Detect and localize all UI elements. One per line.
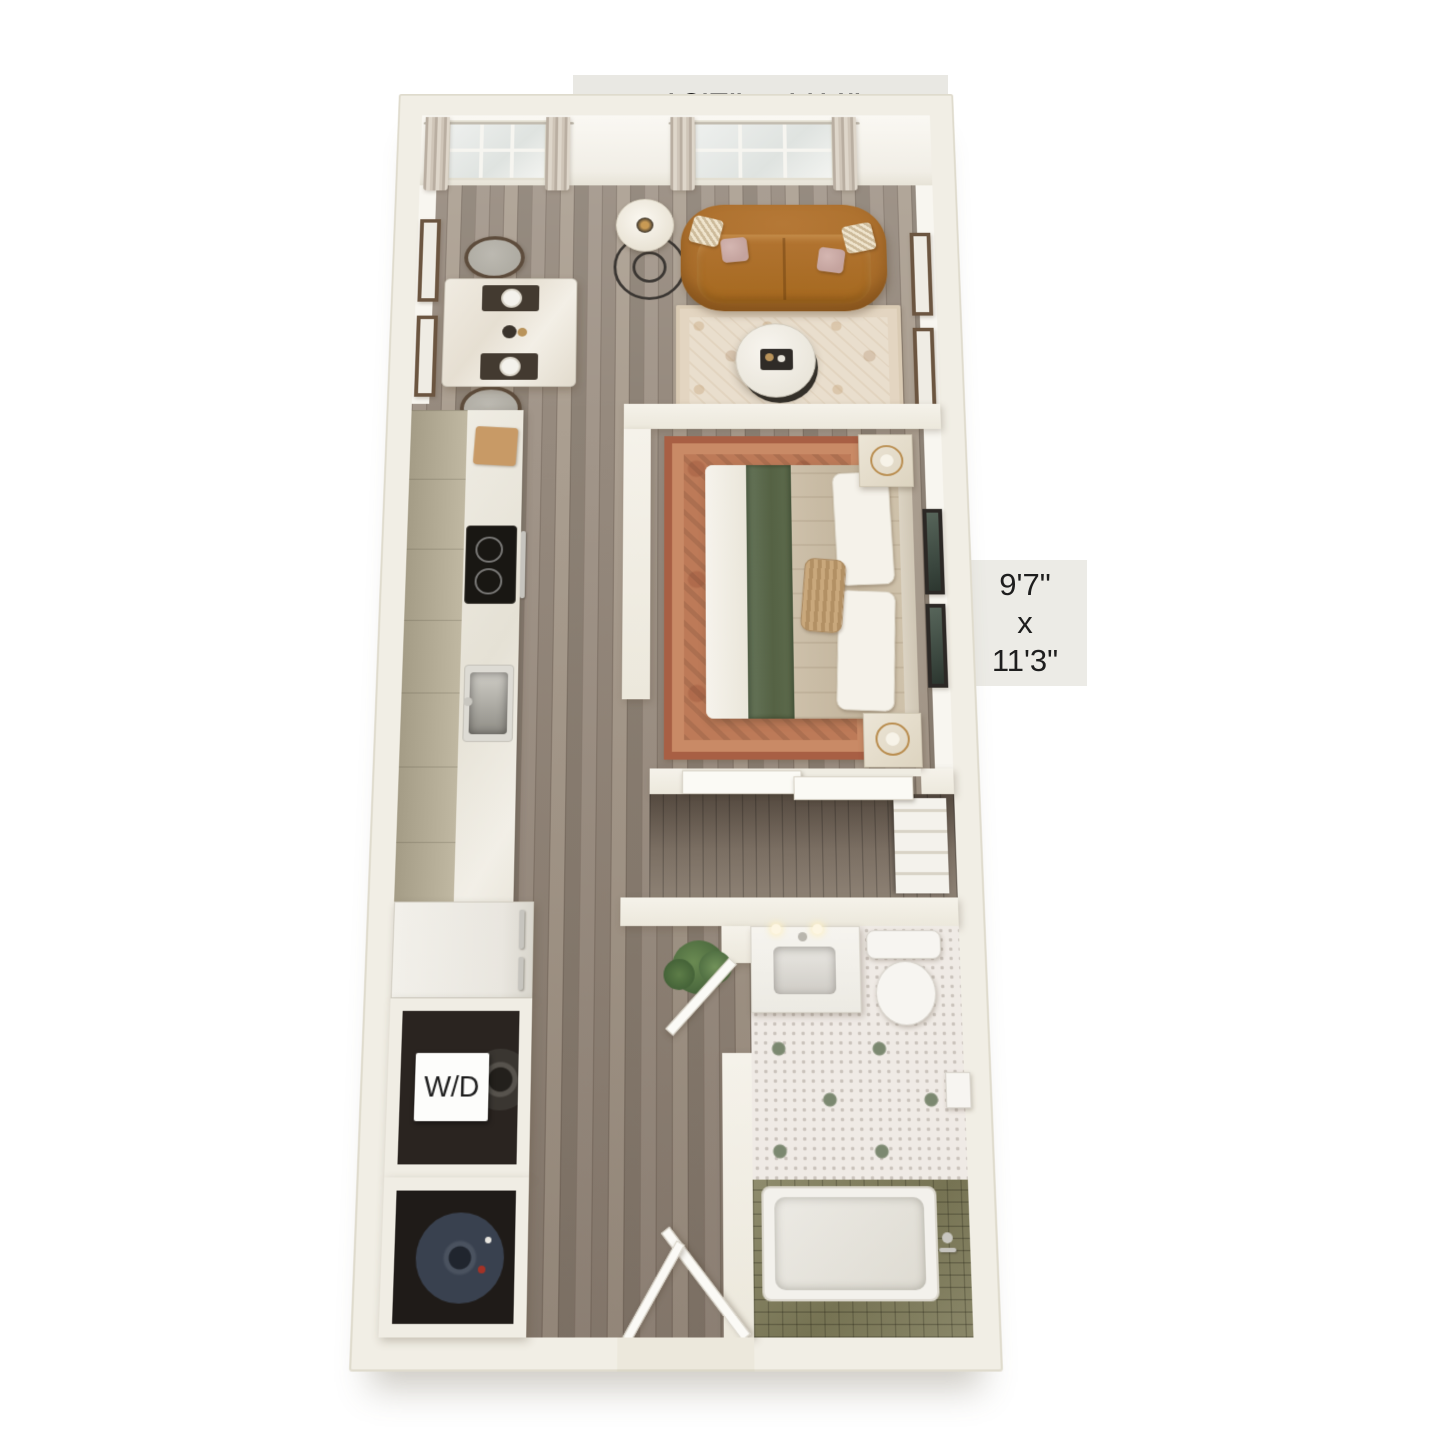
- bedroom-width-text: 9'7": [963, 566, 1087, 604]
- wall-art: [417, 219, 441, 301]
- accent-pillow: [800, 557, 847, 633]
- nightstand-lamp: [875, 723, 910, 756]
- fridge-handle: [518, 957, 524, 990]
- vanity-sink: [773, 947, 836, 995]
- closet-wall-stub: [921, 768, 954, 794]
- floor-lamp-base-inner: [632, 252, 666, 283]
- washer-dryer-sign: W/D: [414, 1053, 490, 1121]
- vanity-faucet: [798, 932, 807, 941]
- floorplan-canvas: 13'7" x 11'4" 9'7" x 11'3": [0, 0, 1440, 1440]
- bathtub-basin: [774, 1197, 926, 1290]
- utility-closet: [379, 1177, 530, 1337]
- window-left: [446, 120, 548, 180]
- vanity-light: [812, 924, 823, 934]
- curtain-panel: [832, 117, 858, 190]
- curtain-panel: [670, 117, 694, 190]
- bed-throw-blanket: [746, 465, 795, 719]
- bathroom-top-wall: [620, 897, 959, 926]
- shower-fixture: [942, 1232, 953, 1243]
- bed-pillow: [836, 590, 895, 712]
- plant-leaves: [664, 959, 695, 990]
- cutting-board: [473, 426, 519, 466]
- bedroom-wall-art: [925, 604, 948, 688]
- closet-shelves: [893, 798, 949, 893]
- toilet-tank: [866, 930, 941, 959]
- tub-spout: [939, 1248, 956, 1252]
- bed-sheet: [705, 465, 748, 719]
- floor-lamp-bulb: [636, 218, 653, 233]
- closet-sliding-door: [682, 770, 802, 794]
- bedroom-top-wall: [624, 404, 941, 429]
- bathroom-left-wall: [722, 1053, 754, 1338]
- closet-sliding-door: [793, 776, 913, 800]
- entry-threshold: [617, 1337, 754, 1371]
- tray-decor: [778, 355, 786, 362]
- apartment-floor-plan: W/D: [349, 94, 1003, 1372]
- curtain-panel: [545, 117, 570, 190]
- bedroom-left-wall: [622, 429, 651, 699]
- fridge-handle: [519, 910, 525, 949]
- window-right: [693, 120, 835, 180]
- nightstand-lamp: [870, 445, 904, 476]
- wall-art: [913, 328, 937, 411]
- toilet-paper-holder: [945, 1072, 972, 1108]
- water-heater: [414, 1212, 505, 1303]
- curtain-panel: [423, 117, 450, 190]
- wall-art: [414, 316, 438, 397]
- vanity-light: [771, 924, 781, 934]
- tray-decor: [765, 353, 774, 361]
- sofa-pillow: [816, 247, 845, 274]
- wall-art: [910, 233, 934, 316]
- closet-wall-stub: [650, 768, 682, 794]
- sofa-pillow: [720, 237, 749, 263]
- bedroom-wall-art: [922, 509, 945, 595]
- bedroom-dimension-label: 9'7" x 11'3": [963, 560, 1087, 686]
- washer-dryer-text: W/D: [424, 1070, 480, 1103]
- bedroom-x-text: x: [963, 604, 1087, 642]
- bedroom-length-text: 11'3": [963, 642, 1087, 680]
- washer-dryer-closet: W/D: [384, 998, 532, 1177]
- refrigerator: [391, 902, 534, 999]
- sink-basin: [469, 672, 509, 734]
